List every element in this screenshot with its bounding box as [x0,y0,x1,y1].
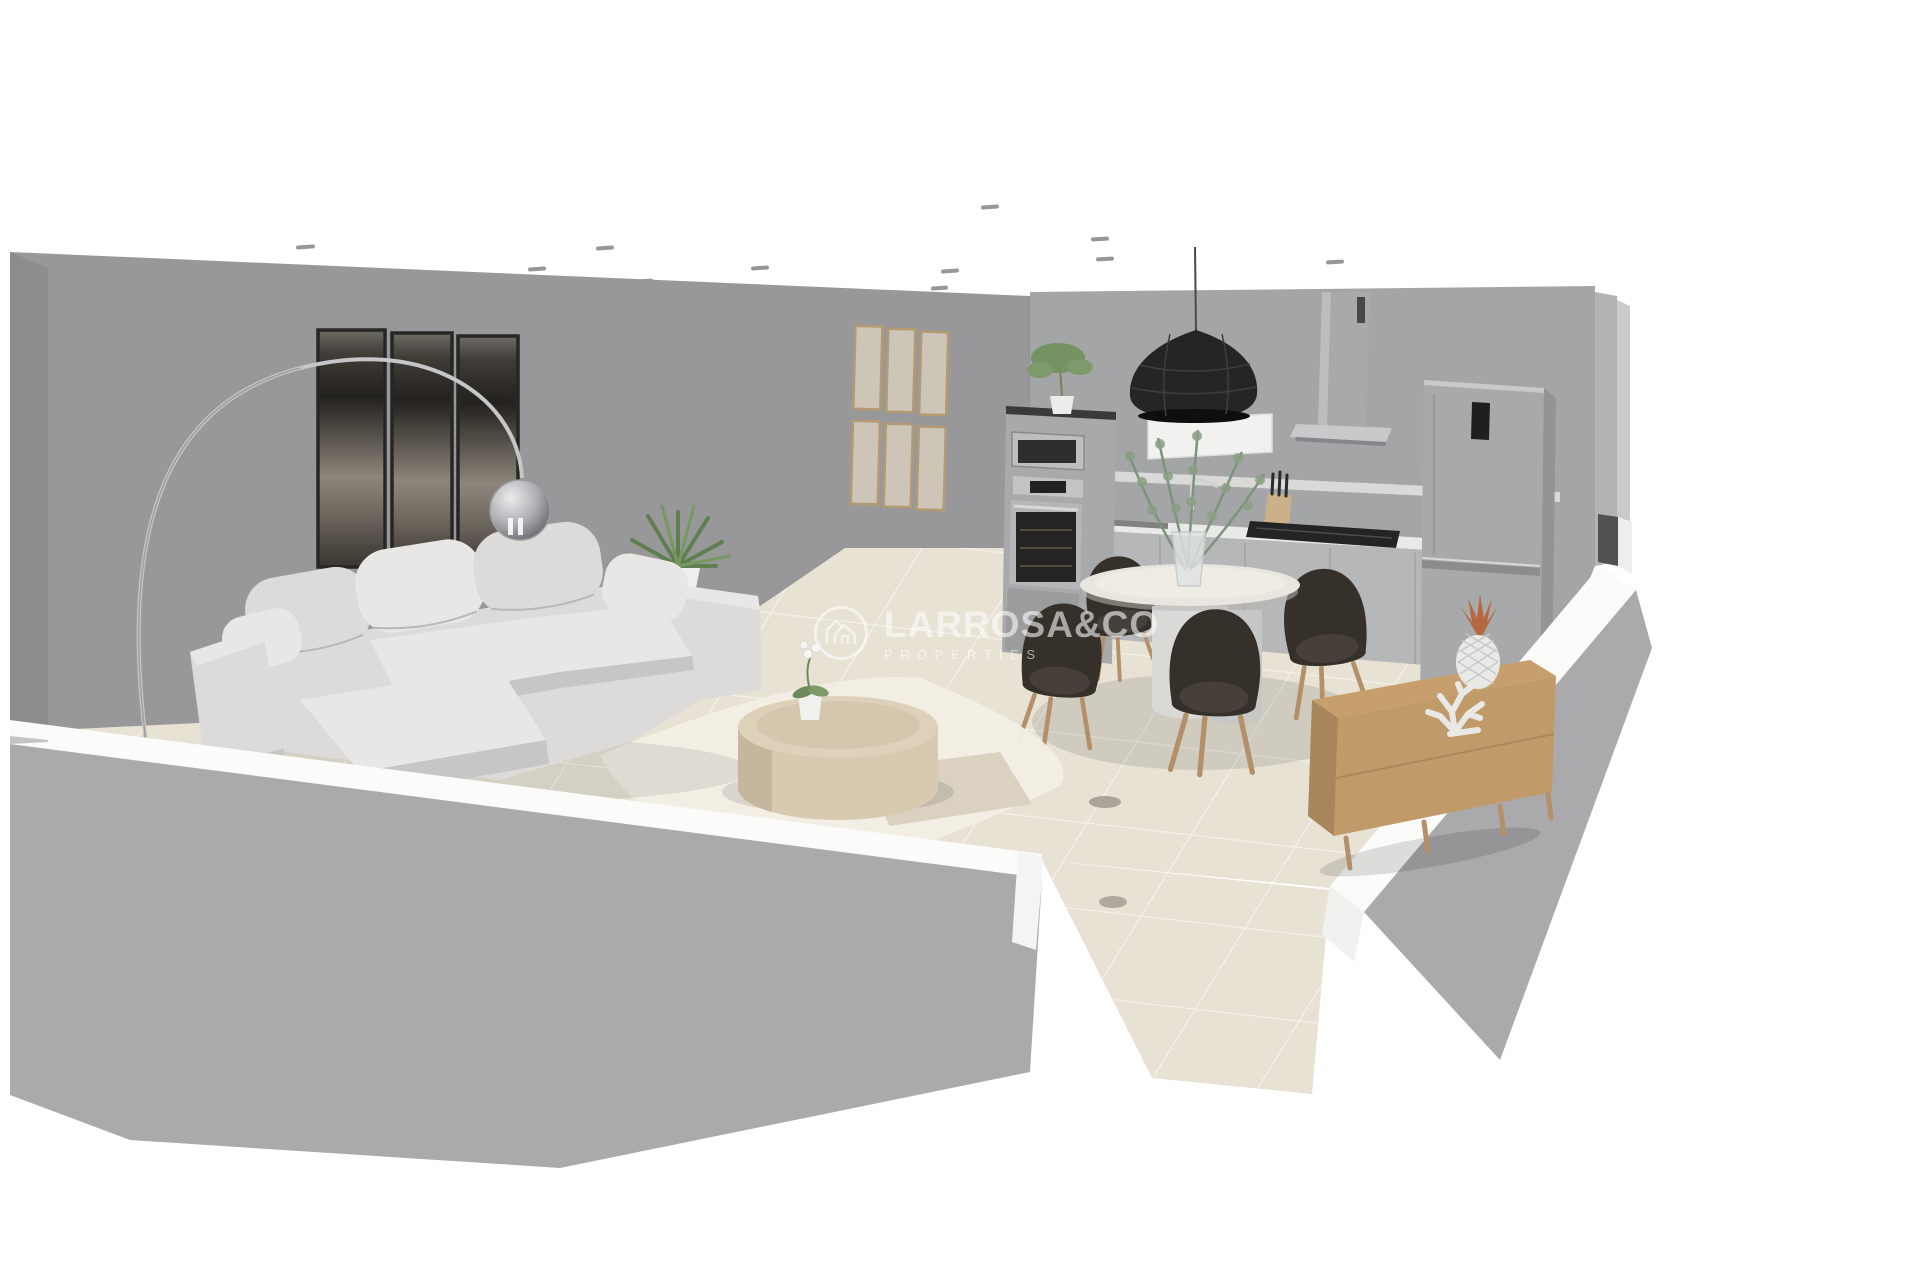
doorway-gap [1598,514,1618,566]
sofa-right-arm [682,598,762,702]
house-logo-icon [812,604,870,662]
microwave-icon [1012,432,1084,470]
oven-icon [1009,500,1082,590]
render-stage: LARROSA&CO PROPERTIES [0,0,1920,1280]
watermark-subtitle: PROPERTIES [884,648,1159,661]
watermark-brand: LARROSA&CO [884,606,1159,643]
watermark: LARROSA&CO PROPERTIES [812,604,1159,662]
